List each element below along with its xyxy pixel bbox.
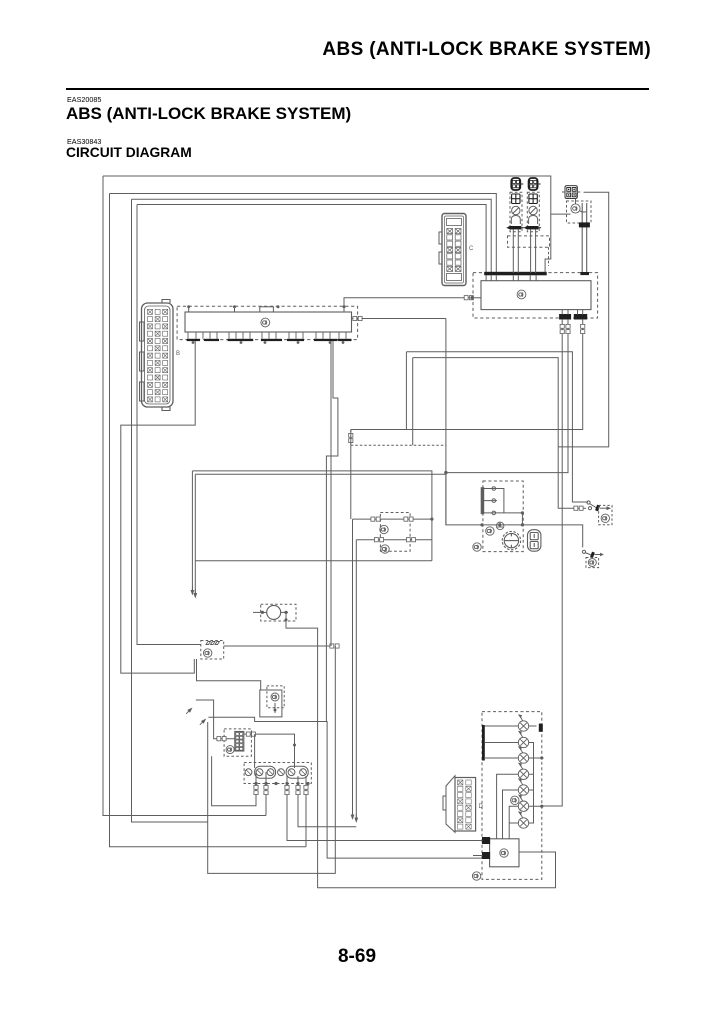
svg-text:C: C	[469, 246, 474, 252]
svg-text:D: D	[479, 804, 484, 810]
svg-text:B: B	[176, 351, 180, 357]
